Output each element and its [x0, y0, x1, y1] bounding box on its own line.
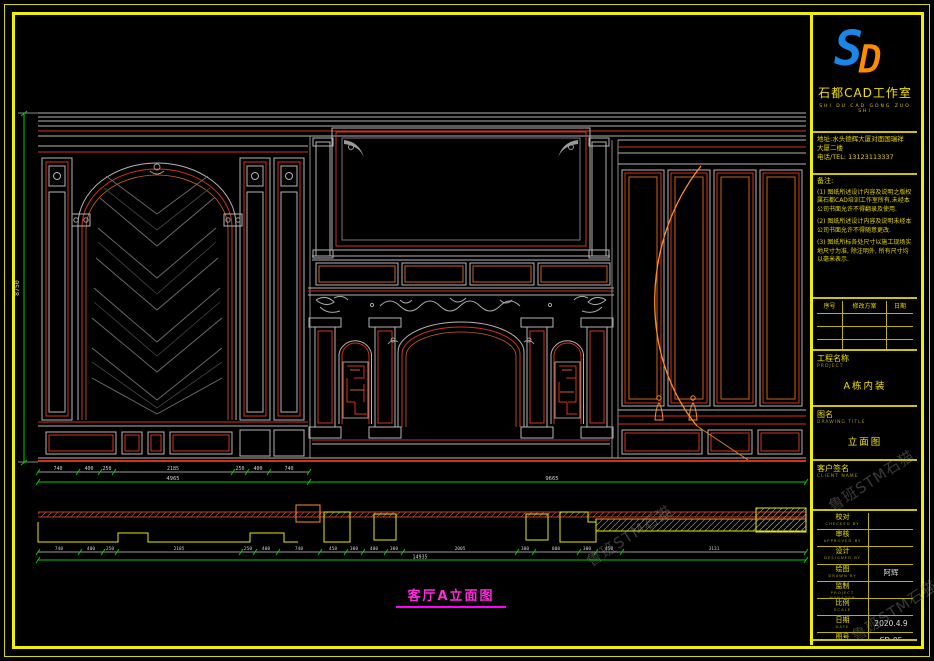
sign-value: 阿辉	[869, 565, 913, 581]
dimension-label: 400	[370, 546, 378, 552]
sign-label-en: DRAWN BY	[817, 573, 868, 578]
sign-label-en: DESIGNED BY	[817, 555, 868, 560]
dimension-label: 740	[53, 466, 62, 472]
dimension-label: 3131	[709, 546, 720, 552]
note-item: (2) 图纸所述设计内容及说明未经本公司书面允许不得随意更改.	[817, 218, 913, 235]
project-section: 工程名称 PROJECT A栋内装	[813, 351, 917, 407]
plan-strip: 740 400 250 2185 250 400 740 450 300 400…	[36, 505, 808, 563]
note-item: (3) 图纸所标各处尺寸以施工现场实地尺寸为准, 除注明外, 所有尺寸均以毫米表…	[817, 239, 913, 265]
drawing-caption: 客厅A立面图	[396, 585, 506, 608]
sign-label: 校对	[817, 514, 868, 521]
sign-row: 设计 DESIGNED BY	[817, 547, 913, 564]
sign-label: 比例	[817, 600, 868, 607]
plan-column	[374, 514, 396, 540]
plan-column	[526, 514, 548, 540]
dimension-label: 400	[84, 466, 93, 472]
studio-logo-icon: S D	[826, 17, 904, 79]
title-block: S D 石都CAD工作室 SHI DU CAD GONG ZUO SHI 地址:…	[810, 15, 917, 645]
rev-cell	[843, 314, 887, 327]
project-label-en: PROJECT	[817, 364, 913, 369]
address-line: 大厦二楼	[817, 144, 913, 153]
studio-name-pinyin: SHI DU CAD GONG ZUO SHI	[817, 104, 913, 114]
cornice-lines	[38, 113, 806, 136]
sign-label-en: APPROVED BY	[817, 538, 868, 543]
sign-label-en: SCALE	[817, 607, 868, 612]
note-item: (1) 图纸所述设计内容及说明之版权属石都CAD培训工作室所有,未经本公司书面允…	[817, 189, 913, 215]
rev-header: 序号	[817, 301, 843, 314]
center-section	[308, 128, 614, 444]
dimension-label: 400	[253, 466, 262, 472]
sign-value	[869, 513, 913, 529]
sign-label: 绘图	[817, 566, 868, 573]
rev-cell	[817, 327, 843, 340]
notes-section: 备注: (1) 图纸所述设计内容及说明之版权属石都CAD培训工作室所有,未经本公…	[813, 175, 917, 299]
dimension-label: 250	[102, 466, 111, 472]
sign-value	[869, 530, 913, 546]
elevation-drawing: 8750 740 400 250 2185 250 400 740 4965 9…	[0, 0, 934, 661]
dimension-label: 450	[329, 546, 337, 552]
sign-row: 审核 APPROVED BY	[817, 530, 913, 547]
dimension-label: 8750	[13, 280, 21, 296]
dimension-label: 250	[235, 466, 244, 472]
dimension-label: 300	[521, 546, 529, 552]
rev-cell	[817, 314, 843, 327]
cad-sheet: 8750 740 400 250 2185 250 400 740 4965 9…	[0, 0, 934, 661]
logo-letter-d: D	[857, 37, 882, 79]
dimension-label: 2005	[455, 546, 466, 552]
sign-row: 校对 CHECKED BY	[817, 513, 913, 530]
rev-cell	[887, 314, 913, 327]
dimension-label: 300	[350, 546, 358, 552]
dimension-label: 4965	[166, 476, 179, 482]
sign-label: 监制	[817, 583, 868, 590]
rev-cell	[887, 327, 913, 340]
dimension-label: 9665	[545, 476, 558, 482]
logo-section: S D 石都CAD工作室 SHI DU CAD GONG ZUO SHI	[813, 15, 917, 133]
drawing-title-label: 图名	[817, 409, 913, 420]
address-line: 地址:水头德辉大厦对面国瑞祥	[817, 135, 913, 144]
rev-cell	[817, 340, 843, 351]
marble-veining	[92, 176, 222, 414]
phone-line: 电话/TEL: 13123113337	[817, 153, 913, 162]
dimensions: 8750 740 400 250 2185 250 400 740 4965 9…	[13, 111, 808, 485]
dimension-label: 2185	[174, 546, 185, 552]
drawing-title-label-en: DRAWING TITLE	[817, 420, 913, 425]
sign-label-en: CHECKED BY	[817, 521, 868, 526]
rev-header: 修改方案	[843, 301, 887, 314]
rev-cell	[843, 327, 887, 340]
left-section	[38, 136, 310, 458]
dimension-label: 300	[390, 546, 398, 552]
dimension-label: 800	[552, 546, 560, 552]
dimension-label: 250	[244, 546, 252, 552]
rev-header: 日期	[887, 301, 913, 314]
dimension-label: 740	[295, 546, 303, 552]
dimension-label: 400	[87, 546, 95, 552]
dimension-label: 250	[106, 546, 114, 552]
sign-value	[869, 547, 913, 563]
rev-cell	[843, 340, 887, 351]
dimension-label: 400	[262, 546, 270, 552]
carved-ornament	[316, 296, 606, 312]
dimension-label: 740	[284, 466, 293, 472]
dimension-label: 740	[55, 546, 63, 552]
sign-label: 设计	[817, 548, 868, 555]
door-swing-arc	[655, 166, 701, 426]
rev-cell	[887, 340, 913, 351]
notes-title: 备注:	[817, 177, 913, 186]
sign-row: 绘图 DRAWN BY 阿辉	[817, 565, 913, 582]
project-label: 工程名称	[817, 353, 913, 364]
dimension-label: 2185	[167, 466, 179, 472]
drawing-title-value: 立面图	[817, 434, 913, 448]
address-section: 地址:水头德辉大厦对面国瑞祥 大厦二楼 电话/TEL: 13123113337	[813, 133, 917, 175]
studio-name: 石都CAD工作室	[817, 84, 913, 101]
dimension-label: 14935	[412, 555, 427, 561]
sign-label: 审核	[817, 531, 868, 538]
revision-table: 序号 修改方案 日期	[813, 299, 917, 351]
project-value: A栋内装	[817, 378, 913, 392]
